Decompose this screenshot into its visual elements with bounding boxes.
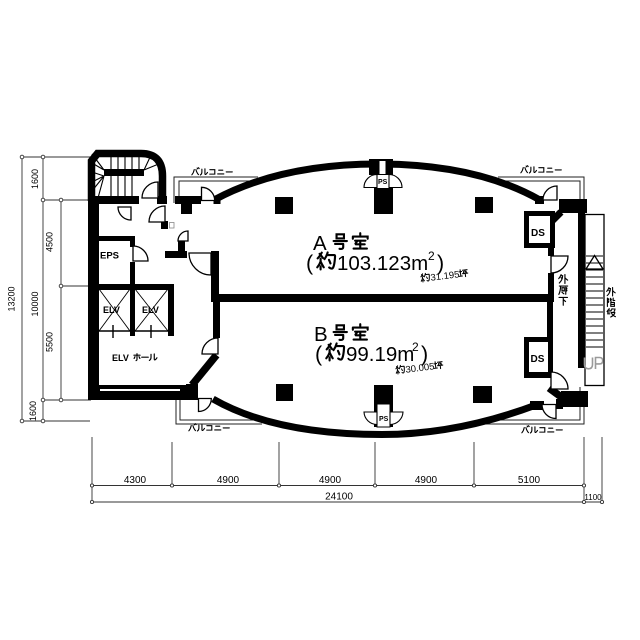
svg-text:A: A <box>313 232 327 255</box>
svg-text:5500: 5500 <box>45 332 55 352</box>
svg-text:1600: 1600 <box>28 401 38 421</box>
svg-text:ELV: ELV <box>142 305 159 315</box>
svg-text:ELV: ELV <box>112 353 129 363</box>
svg-text:DS: DS <box>531 228 545 239</box>
svg-text:1100: 1100 <box>584 493 602 502</box>
svg-text:4900: 4900 <box>319 475 342 486</box>
svg-text:PS: PS <box>378 179 388 186</box>
svg-text:EPS: EPS <box>100 251 119 262</box>
svg-text:10000: 10000 <box>30 291 40 316</box>
svg-text:2: 2 <box>428 249 435 263</box>
svg-text:13200: 13200 <box>7 286 17 311</box>
svg-text:5100: 5100 <box>518 475 541 486</box>
svg-text:4900: 4900 <box>217 475 240 486</box>
svg-text:(: ( <box>306 251 314 275</box>
svg-text:4900: 4900 <box>415 475 438 486</box>
svg-text:103.123m: 103.123m <box>337 252 428 275</box>
svg-text:PS: PS <box>379 416 389 423</box>
svg-text:99.19m: 99.19m <box>346 343 414 366</box>
svg-text:2: 2 <box>412 340 419 354</box>
svg-text:4500: 4500 <box>45 232 55 252</box>
svg-text:DS: DS <box>531 354 545 365</box>
svg-text:(: ( <box>315 342 323 366</box>
svg-text:4300: 4300 <box>124 475 147 486</box>
svg-text:ELV: ELV <box>103 305 120 315</box>
svg-text:24100: 24100 <box>325 492 353 503</box>
svg-text:1600: 1600 <box>30 169 40 189</box>
